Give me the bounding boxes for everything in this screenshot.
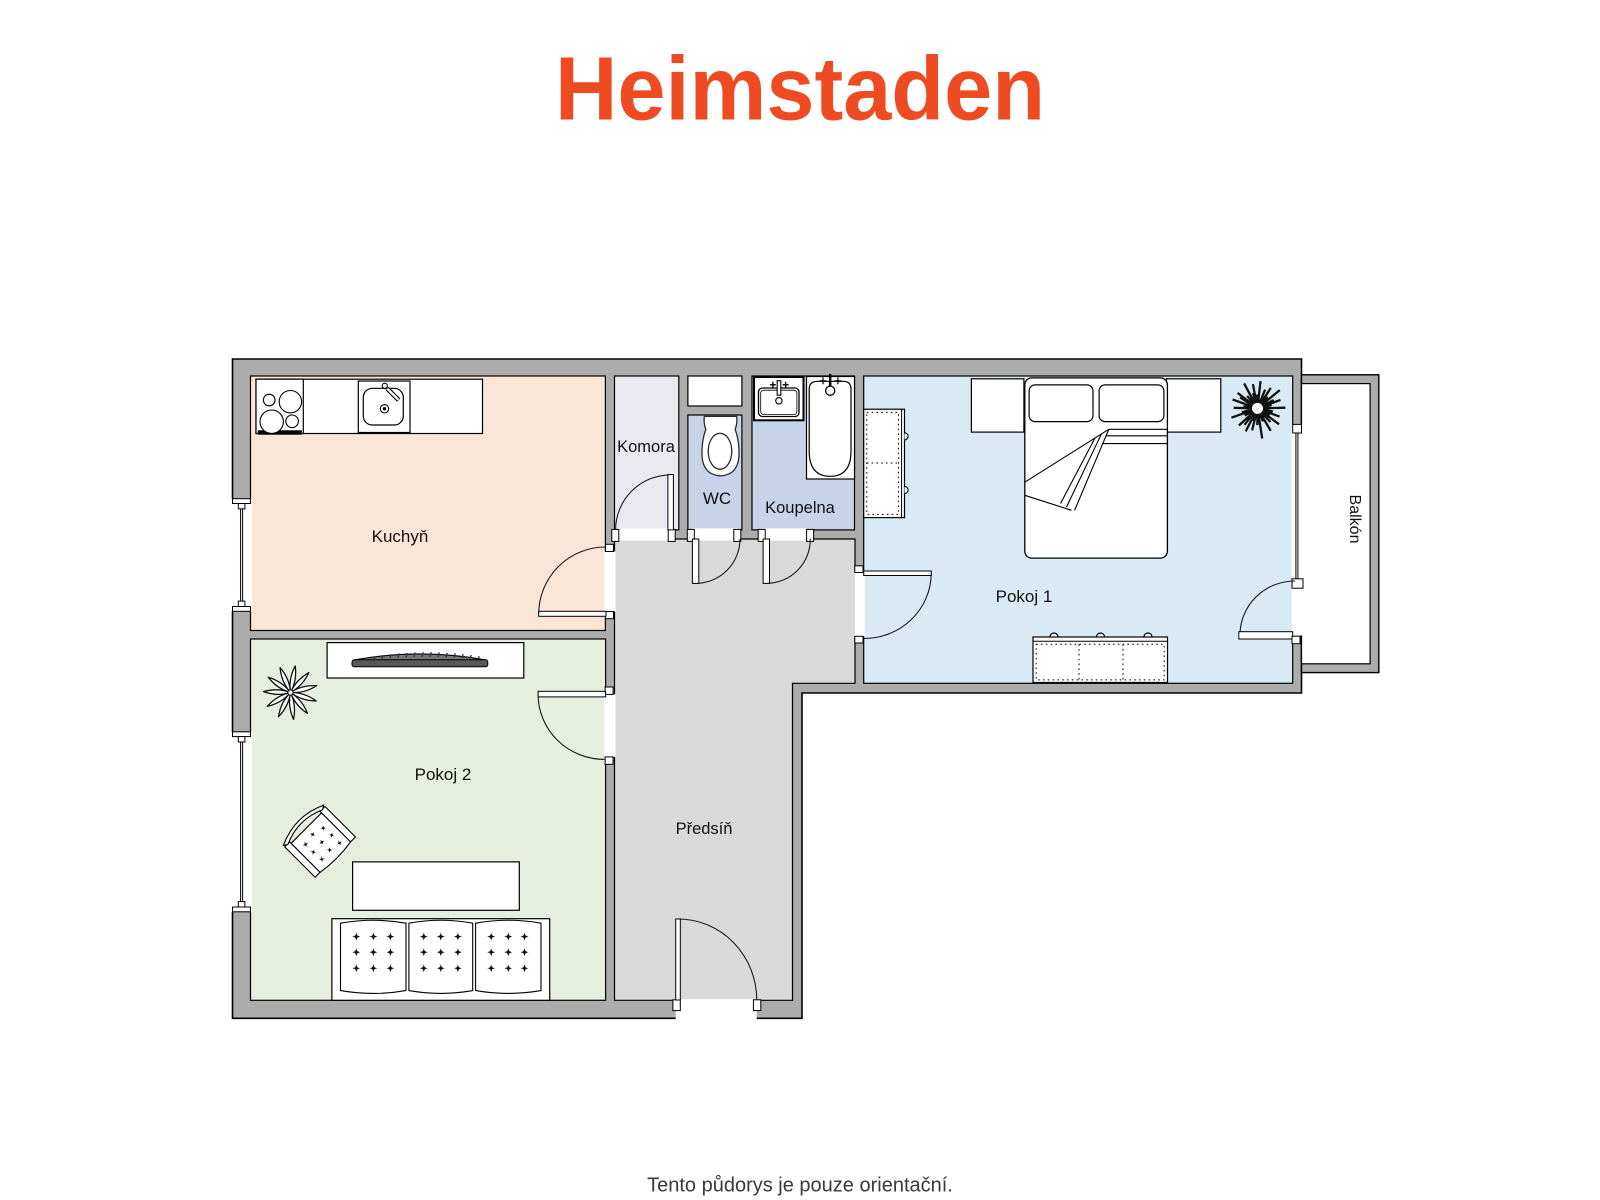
svg-text:Tento půdorys je pouze orienta: Tento půdorys je pouze orientační. — [647, 1175, 953, 1197]
svg-text:Předsíň: Předsíň — [676, 820, 733, 838]
svg-text:Komora: Komora — [617, 438, 676, 456]
svg-text:Heimstaden: Heimstaden — [555, 40, 1045, 140]
svg-text:Kuchyň: Kuchyň — [372, 527, 429, 546]
svg-text:Pokoj 2: Pokoj 2 — [415, 765, 472, 784]
svg-text:WC: WC — [703, 489, 731, 508]
svg-text:Balkón: Balkón — [1346, 495, 1363, 544]
svg-text:Koupelna: Koupelna — [765, 499, 836, 517]
svg-text:Pokoj 1: Pokoj 1 — [996, 587, 1053, 606]
